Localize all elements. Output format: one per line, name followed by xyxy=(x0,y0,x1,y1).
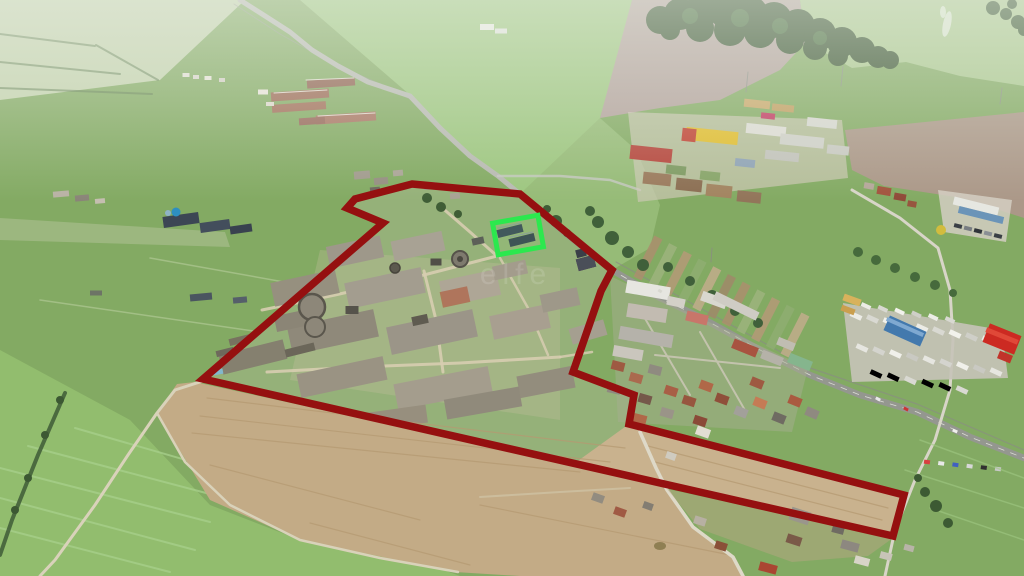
highlight-box xyxy=(493,215,544,255)
aerial-photo-recreation: elfe xyxy=(0,0,1024,576)
aerial-photo-screenshot: elfe xyxy=(0,0,1024,576)
highlight-box-part xyxy=(493,215,544,255)
scene-layers: elfe xyxy=(0,0,1024,576)
watermark: elfe xyxy=(480,258,552,291)
